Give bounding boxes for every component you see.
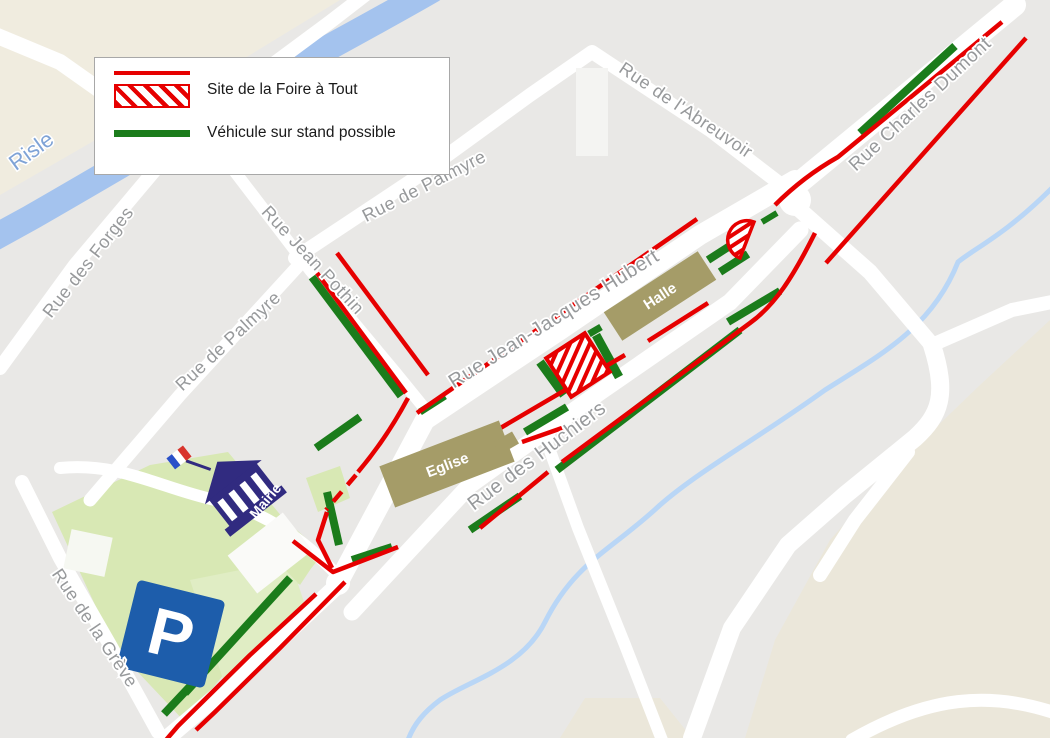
legend-green-line-swatch [114, 130, 190, 137]
legend-hatch-swatch [114, 84, 190, 108]
legend-item-stand: Véhicule sur stand possible [114, 124, 449, 142]
legend-label-site: Site de la Foire à Tout [207, 81, 358, 99]
legend-red-line-swatch [114, 71, 190, 75]
legend: Site de la Foire à Tout Véhicule sur sta… [94, 57, 450, 175]
legend-item-site: Site de la Foire à Tout [114, 71, 449, 108]
legend-label-stand: Véhicule sur stand possible [207, 124, 396, 142]
map-screenshot: Halle Eglise Mairie P Risle Rue des Forg… [0, 0, 1050, 738]
